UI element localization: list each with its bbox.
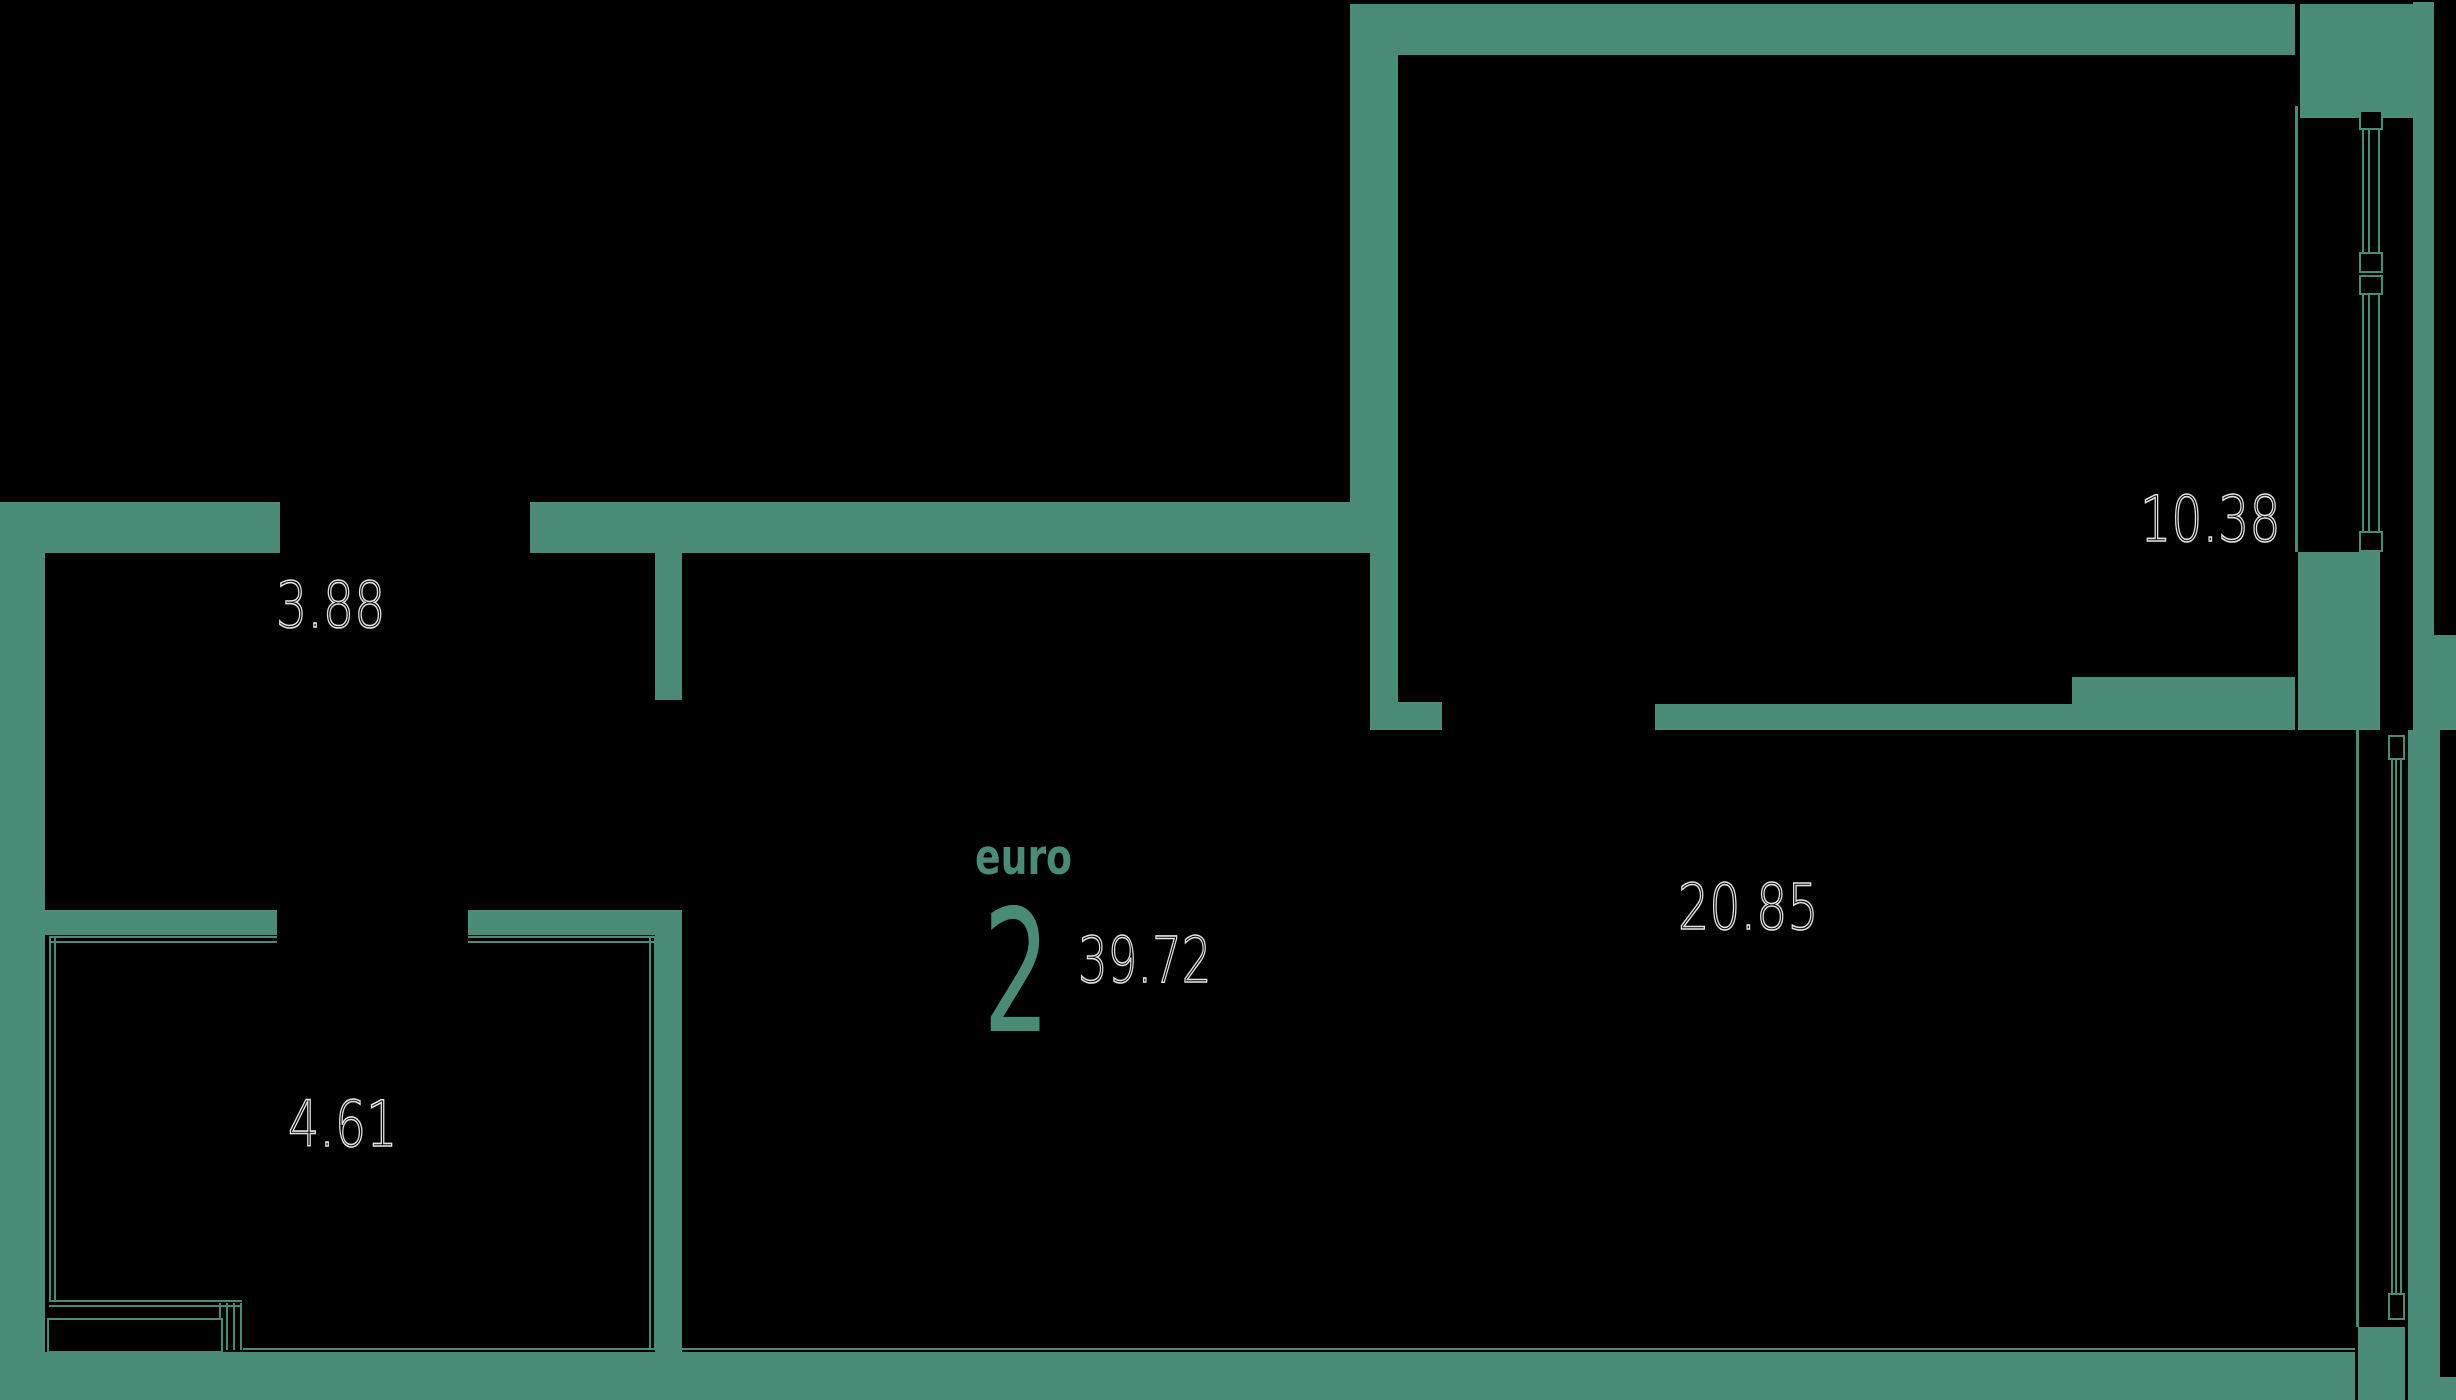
wall-top-right-corner-block — [2300, 4, 2413, 118]
floor-plan-canvas: 3.88 4.61 10.38 20.85 euro 2 39.72 — [0, 0, 2456, 1400]
face-line-bottom-wall — [243, 1348, 2355, 1350]
room-area-label-hallway: 3.88 — [276, 574, 385, 637]
window-bedroom-upper-cap-top — [2359, 110, 2383, 130]
wall-hall-stub — [655, 553, 682, 700]
window-living-glass — [2395, 745, 2397, 1312]
apartment-type-number: 2 — [983, 888, 1050, 1058]
bathroom-face-line-right — [649, 938, 656, 1348]
corner-step-line — [233, 1303, 235, 1350]
bathroom-face-line-left — [49, 936, 56, 1302]
wall-bedroom-bottom-thin — [1655, 704, 2072, 730]
window-bedroom-lower-cap-top — [2359, 275, 2383, 295]
corner-step-line — [226, 1303, 228, 1350]
window-bedroom-upper-glass — [2368, 120, 2370, 266]
window-living-cap-bottom — [2388, 1293, 2405, 1320]
bathroom-face-line-top-right — [468, 936, 656, 943]
corner-step-line — [240, 1303, 242, 1350]
room-area-label-bedroom: 10.38 — [2140, 488, 2281, 551]
face-line-living-window — [2356, 730, 2359, 1327]
wall-bottom-right-block — [2358, 1327, 2405, 1400]
window-bedroom-upper-cap-bottom — [2359, 252, 2383, 273]
wall-mid-right-segment — [530, 502, 1398, 553]
wall-bedroom-bottom-thick — [2072, 677, 2295, 730]
window-living-cap-top — [2388, 735, 2405, 760]
bathroom-face-line-bottom — [49, 1300, 242, 1307]
wall-outer-strip-upper — [2413, 2, 2434, 635]
wall-outer-strip-lower — [2408, 730, 2440, 1400]
wall-bottom — [43, 1352, 2355, 1400]
window-bedroom-lower-glass — [2368, 286, 2370, 544]
wall-bathroom-top-left — [45, 910, 277, 935]
wall-bathroom-top-right — [468, 910, 682, 935]
wall-center-partition-foot — [1370, 702, 1442, 730]
window-bedroom-lower-cap-bottom — [2359, 531, 2383, 552]
room-area-label-bathroom: 4.61 — [288, 1093, 397, 1156]
wall-top — [1350, 4, 2295, 55]
apartment-total-area: 39.72 — [1078, 929, 1211, 992]
wall-bedroom-left — [1350, 4, 1398, 502]
face-line-bedroom-window — [2295, 106, 2298, 552]
wall-bathroom-right — [655, 910, 682, 1357]
bathroom-face-line-top-left — [49, 936, 277, 943]
wall-outer-strip-bottom-corner — [2440, 1377, 2456, 1400]
room-area-label-living: 20.85 — [1678, 876, 1819, 939]
wall-left-outer — [0, 502, 45, 1400]
door-leaf — [47, 1318, 223, 1353]
wall-outer-strip-step — [2413, 635, 2456, 730]
window-bedroom-upper — [2362, 113, 2380, 273]
window-bedroom-lower — [2362, 278, 2380, 552]
wall-window-pier — [2298, 552, 2380, 730]
